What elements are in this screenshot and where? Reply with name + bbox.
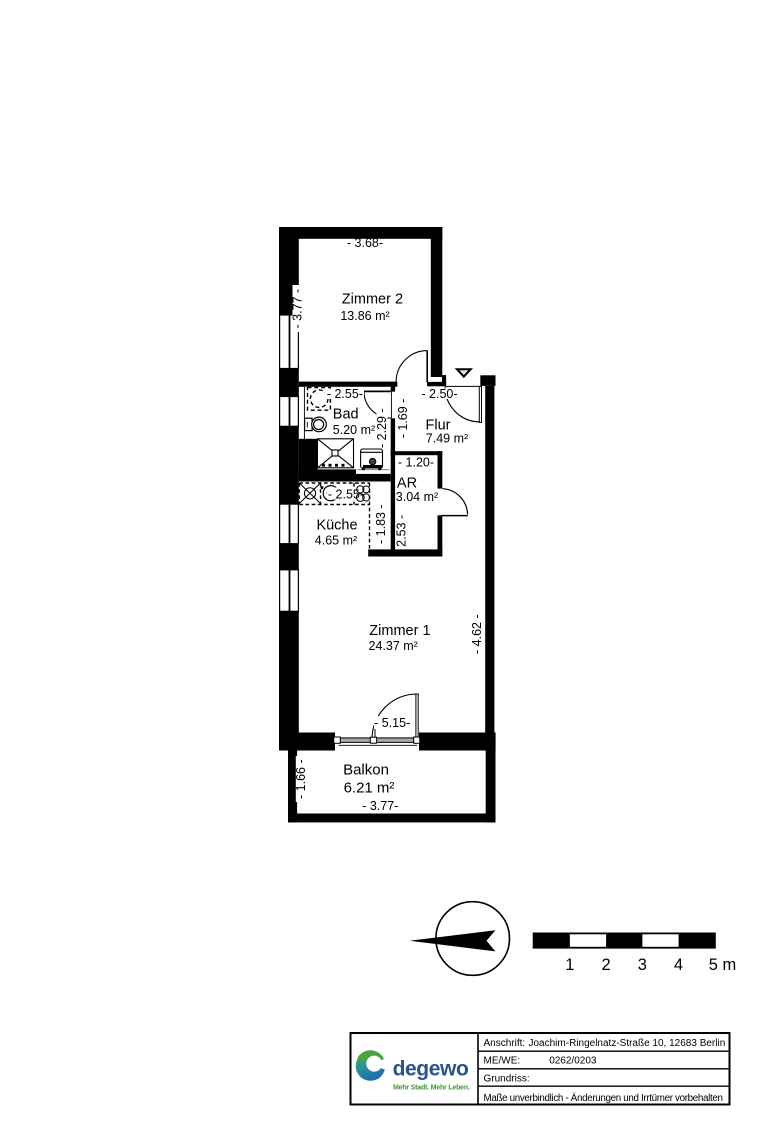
svg-text:- 3.77-: - 3.77- xyxy=(362,799,398,813)
svg-text:- 1.66 -: - 1.66 - xyxy=(294,759,308,799)
svg-text:Mehr Stadt. Mehr Leben.: Mehr Stadt. Mehr Leben. xyxy=(393,1084,470,1091)
svg-text:- 3.68-: - 3.68- xyxy=(347,236,383,250)
svg-text:- 2.55-: - 2.55- xyxy=(327,387,363,401)
svg-text:13.86 m²: 13.86 m² xyxy=(340,309,389,323)
svg-text:6.21 m²: 6.21 m² xyxy=(344,779,395,796)
svg-text:Balkon: Balkon xyxy=(343,762,389,779)
svg-text:ME/WE:: ME/WE: xyxy=(484,1056,521,1067)
svg-text:4: 4 xyxy=(674,956,683,974)
svg-text:3: 3 xyxy=(638,956,647,974)
svg-text:degewo: degewo xyxy=(393,1058,469,1081)
svg-text:- 2.50-: - 2.50- xyxy=(421,387,457,401)
svg-text:Küche: Küche xyxy=(316,518,357,534)
svg-text:Maße unverbindlich - Änderunge: Maße unverbindlich - Änderungen und Irrt… xyxy=(484,1093,723,1104)
svg-text:7.49 m²: 7.49 m² xyxy=(426,432,468,446)
svg-text:Joachim-Ringelnatz-Straße 10,: Joachim-Ringelnatz-Straße 10, 12683 Berl… xyxy=(529,1038,726,1049)
svg-text:1: 1 xyxy=(565,956,574,974)
svg-text:4.65 m²: 4.65 m² xyxy=(315,533,357,547)
svg-text:- 2.29 -: - 2.29 - xyxy=(375,408,389,448)
svg-text:- 3.77 -: - 3.77 - xyxy=(291,289,305,329)
svg-text:Zimmer 1: Zimmer 1 xyxy=(369,623,430,639)
svg-text:- 1.69 -: - 1.69 - xyxy=(396,399,410,439)
svg-text:- 4.62 -: - 4.62 - xyxy=(470,614,484,654)
svg-text:5 m: 5 m xyxy=(709,956,737,974)
svg-text:Zimmer 2: Zimmer 2 xyxy=(342,292,403,308)
svg-text:- 2.53 -: - 2.53 - xyxy=(395,515,409,555)
svg-text:- 1.83 -: - 1.83 - xyxy=(374,504,388,544)
svg-text:Anschrift:: Anschrift: xyxy=(484,1038,526,1049)
svg-text:Grundriss:: Grundriss: xyxy=(484,1074,530,1085)
svg-text:3.04 m²: 3.04 m² xyxy=(396,490,438,504)
svg-text:- 1.20-: - 1.20- xyxy=(398,456,434,470)
svg-text:0262/0203: 0262/0203 xyxy=(549,1056,597,1067)
svg-text:- 5.15-: - 5.15- xyxy=(374,716,410,730)
svg-text:5.20 m²: 5.20 m² xyxy=(333,423,375,437)
svg-text:Bad: Bad xyxy=(333,406,359,422)
svg-text:24.37 m²: 24.37 m² xyxy=(369,639,418,653)
svg-text:2: 2 xyxy=(602,956,611,974)
